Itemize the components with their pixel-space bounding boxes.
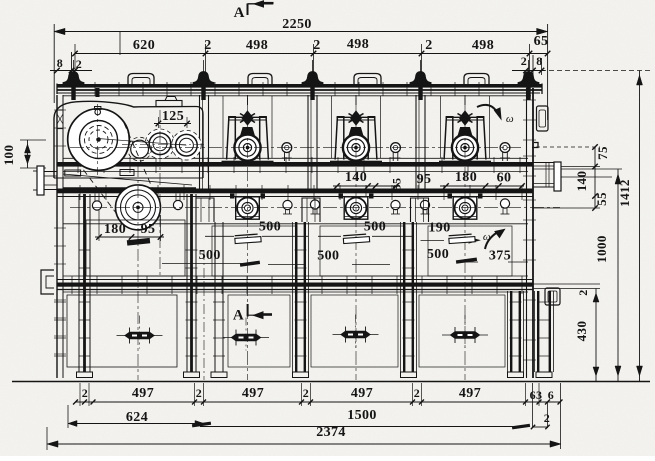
svg-text:95: 95 <box>417 172 432 187</box>
svg-text:500: 500 <box>199 248 221 263</box>
svg-text:498: 498 <box>246 38 268 53</box>
svg-text:498: 498 <box>472 38 494 53</box>
svg-text:500: 500 <box>364 220 386 235</box>
svg-text:497: 497 <box>132 386 154 401</box>
svg-text:ω: ω <box>506 113 514 125</box>
svg-text:180: 180 <box>104 222 126 237</box>
svg-text:65: 65 <box>534 34 549 49</box>
svg-text:A: A <box>234 5 245 21</box>
svg-text:2: 2 <box>576 289 590 295</box>
svg-text:620: 620 <box>133 38 155 53</box>
svg-text:190: 190 <box>428 221 450 236</box>
svg-text:497: 497 <box>459 386 481 401</box>
svg-text:430: 430 <box>574 321 589 342</box>
svg-text:2250: 2250 <box>282 17 312 32</box>
svg-text:500: 500 <box>259 220 281 235</box>
svg-text:497: 497 <box>242 386 264 401</box>
svg-text:1500: 1500 <box>347 408 377 423</box>
svg-text:35: 35 <box>390 178 404 191</box>
svg-text:125: 125 <box>162 109 184 124</box>
svg-text:140: 140 <box>574 171 589 192</box>
svg-text:95: 95 <box>141 222 156 237</box>
svg-text:2: 2 <box>313 38 320 53</box>
svg-text:500: 500 <box>427 247 449 262</box>
svg-text:2: 2 <box>544 411 550 425</box>
svg-text:2: 2 <box>521 54 527 68</box>
svg-text:2: 2 <box>425 38 432 53</box>
svg-text:100: 100 <box>1 145 16 166</box>
svg-text:375: 375 <box>489 249 511 264</box>
svg-text:2374: 2374 <box>316 425 346 440</box>
svg-text:ω: ω <box>483 231 491 243</box>
svg-text:497: 497 <box>351 386 373 401</box>
svg-text:2: 2 <box>82 386 88 400</box>
svg-text:2: 2 <box>414 386 420 400</box>
svg-text:500: 500 <box>317 249 339 264</box>
svg-text:2: 2 <box>196 386 202 400</box>
svg-text:498: 498 <box>347 37 369 52</box>
svg-text:2: 2 <box>303 386 309 400</box>
svg-text:75: 75 <box>595 146 610 160</box>
svg-text:A: A <box>233 308 244 324</box>
svg-text:8: 8 <box>57 56 63 70</box>
svg-text:1000: 1000 <box>594 235 609 263</box>
svg-text:180: 180 <box>455 170 477 185</box>
svg-text:624: 624 <box>126 410 148 425</box>
svg-text:60: 60 <box>497 171 512 186</box>
svg-text:55: 55 <box>594 192 609 206</box>
